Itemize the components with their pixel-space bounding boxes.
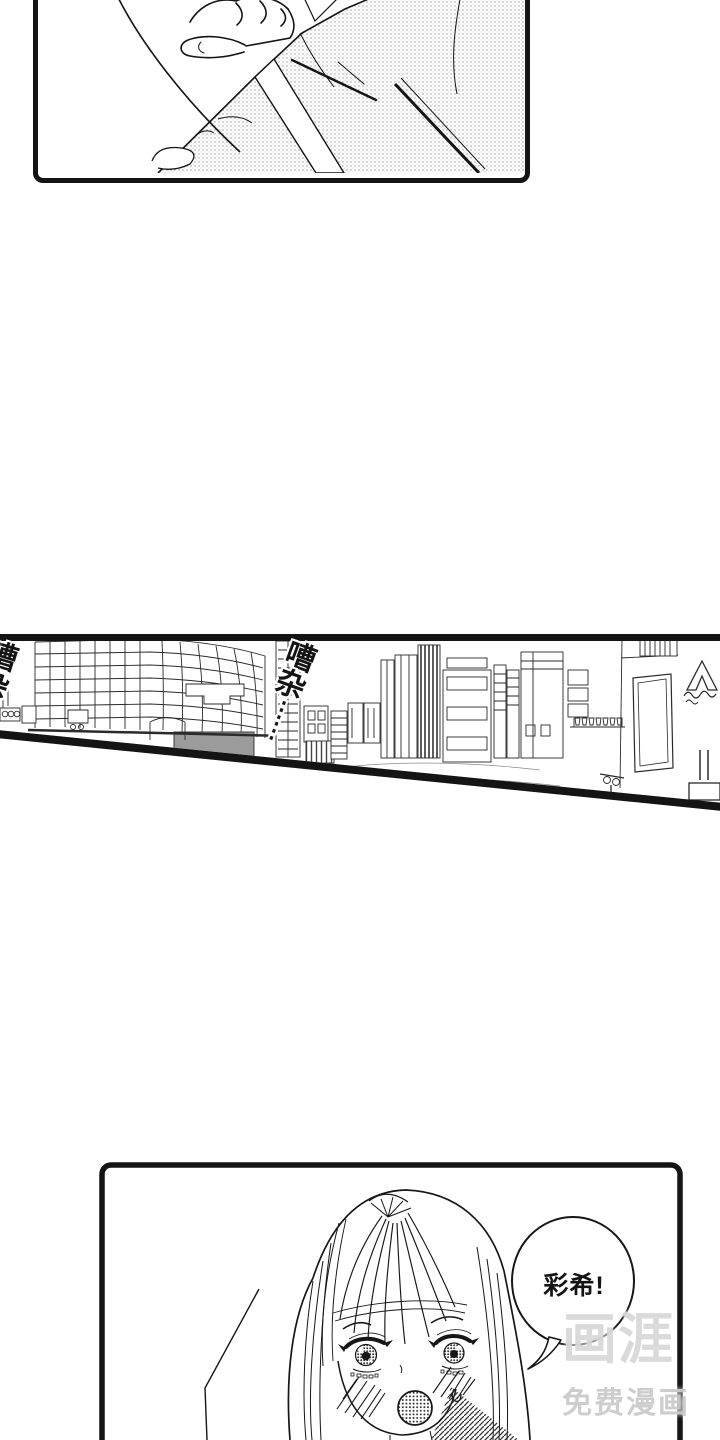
open-mouth — [398, 1391, 432, 1425]
panel-cityscape — [0, 628, 720, 813]
city-panel-bottom-border — [0, 734, 720, 807]
thumb — [181, 37, 245, 58]
big-right-building — [620, 636, 678, 788]
watermark-logo: 画涯 — [562, 1312, 720, 1367]
city-panel-top-border — [0, 634, 720, 641]
billboard-stack — [568, 670, 625, 727]
comic-page[interactable]: 嘈 杂 ⋮ ⋮ 嘈 杂 ⋮ ⋮ — [0, 0, 720, 1440]
banded-building — [443, 658, 491, 762]
bubble-tail — [528, 1337, 561, 1369]
foreground-shoulder — [205, 1289, 269, 1440]
triangle-logo-sign — [684, 661, 720, 800]
watermark: 画涯 免费漫画 — [562, 1312, 720, 1422]
watermark-tagline: 免费漫画 — [562, 1378, 720, 1422]
striped-shutter — [306, 741, 334, 763]
dark-striped-tower — [418, 645, 440, 758]
coat-shape — [152, 0, 525, 173]
sfx-dots: ⋮ — [260, 718, 287, 743]
city-buildings — [0, 636, 720, 802]
speech-bubble-text: 彩希! — [529, 1266, 619, 1302]
closeup-hand-art — [38, 0, 525, 173]
panel-closeup-hand — [33, 0, 530, 183]
rooftop-sign — [186, 684, 244, 704]
